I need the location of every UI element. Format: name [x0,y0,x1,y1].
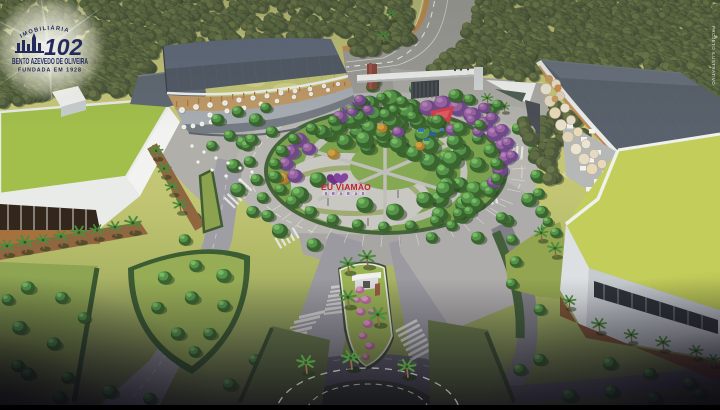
svg-text:FUNDADA EM 1928: FUNDADA EM 1928 [18,68,82,74]
svg-text:BENTO AZEVEDO DE OLIVEIRA: BENTO AZEVEDO DE OLIVEIRA [12,56,88,66]
svg-text:EU VIAMÃO: EU VIAMÃO [321,182,371,192]
svg-text:PROJETO ILUSTRATIVO: PROJETO ILUSTRATIVO [711,26,716,85]
